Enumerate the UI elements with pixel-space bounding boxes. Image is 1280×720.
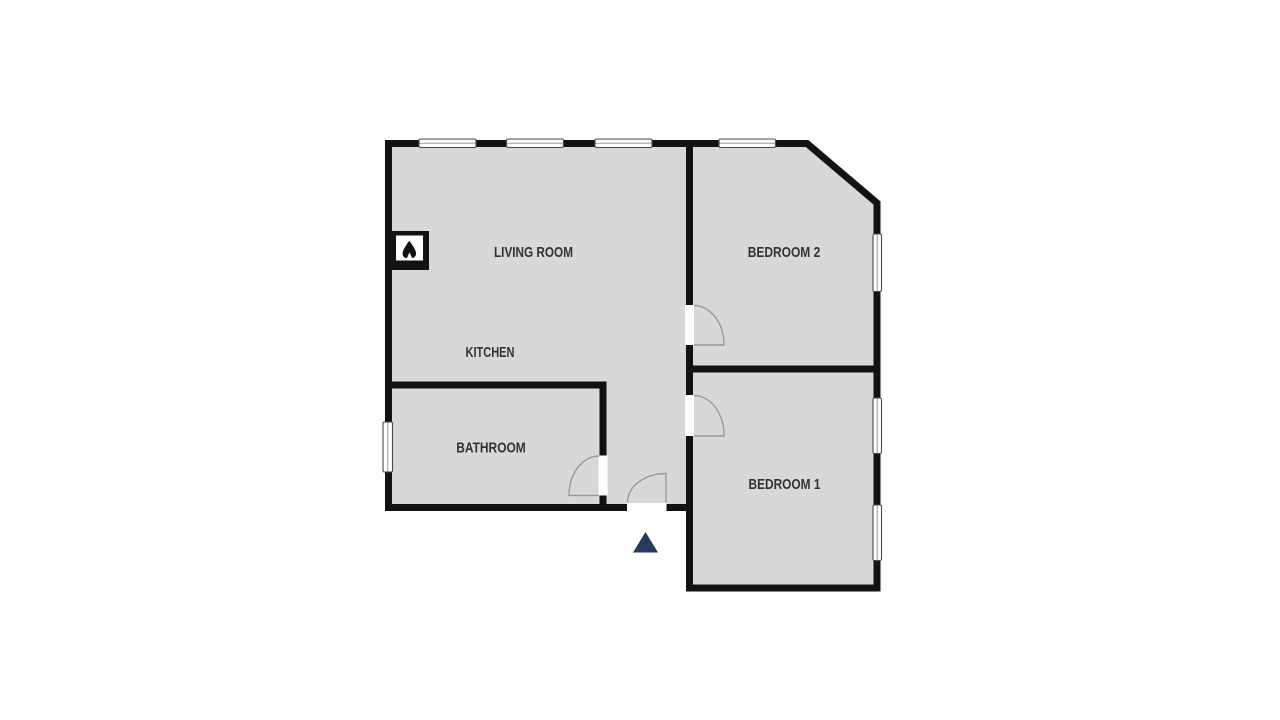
svg-text:BEDROOM 1: BEDROOM 1 xyxy=(749,476,821,493)
svg-text:BEDROOM 2: BEDROOM 2 xyxy=(748,244,821,261)
svg-text:BATHROOM: BATHROOM xyxy=(456,440,526,457)
svg-text:KITCHEN: KITCHEN xyxy=(466,344,515,361)
svg-text:LIVING ROOM: LIVING ROOM xyxy=(494,244,573,261)
